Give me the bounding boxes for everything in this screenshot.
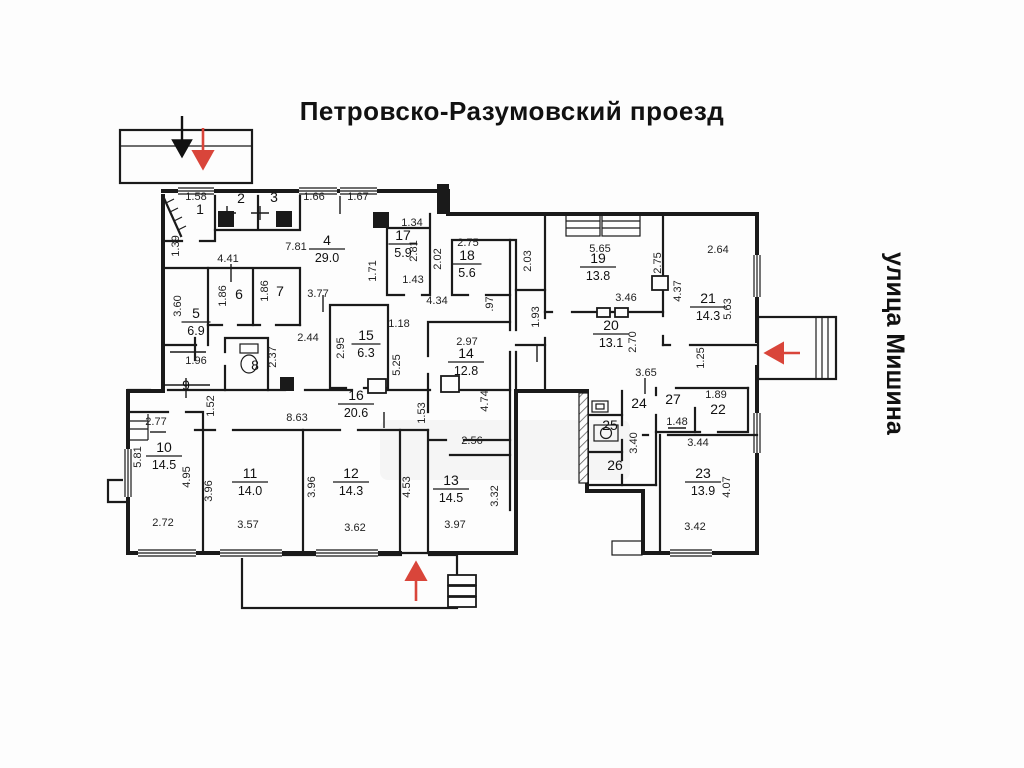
room-number: 17 <box>395 227 411 243</box>
dim-label: 2.03 <box>522 250 534 271</box>
dim-label: 4.53 <box>401 476 413 497</box>
dim-label: 3.97 <box>444 519 465 531</box>
room-area: 13.8 <box>586 269 610 283</box>
room-number: 26 <box>607 457 623 473</box>
dim-label: 1.25 <box>695 347 707 368</box>
dim-label: 4.37 <box>672 280 684 301</box>
room-number: 16 <box>348 387 364 403</box>
dim-label: 4.95 <box>181 466 193 487</box>
dim-label: 4.74 <box>479 390 491 411</box>
room-area: 20.6 <box>344 406 368 420</box>
dim-label: 2.72 <box>152 517 173 529</box>
dim-label: 2.02 <box>432 248 444 269</box>
dim-label: 4.34 <box>426 295 447 307</box>
staircase <box>566 214 640 236</box>
dim-label: 3.40 <box>628 432 640 453</box>
dim-label: 2.75 <box>652 252 664 273</box>
room-number: 6 <box>235 286 243 302</box>
room-number: 3 <box>270 189 278 205</box>
room-number: 21 <box>700 290 716 306</box>
room-number: 24 <box>631 395 647 411</box>
room-area: 13.9 <box>691 484 715 498</box>
dim-label: 3.32 <box>489 485 501 506</box>
room-number: 2 <box>237 190 245 206</box>
dim-label: 1.86 <box>217 285 229 306</box>
room-number: 7 <box>276 283 284 299</box>
room-number: 23 <box>695 465 711 481</box>
dim-label: 1.43 <box>402 274 423 286</box>
dim-label: 1.96 <box>185 355 206 367</box>
dim-label: 1.71 <box>367 260 379 281</box>
room-number: 13 <box>443 472 459 488</box>
room-area: 14.5 <box>439 491 463 505</box>
dim-label: 4.41 <box>217 253 238 265</box>
room-number: 20 <box>603 317 619 333</box>
room-number: 18 <box>459 247 475 263</box>
room-area: 5.9 <box>394 246 411 260</box>
room-area: 14.3 <box>339 484 363 498</box>
dim-label: 2.56 <box>461 435 482 447</box>
dim-label: 2.44 <box>297 332 318 344</box>
dim-label: 4.07 <box>721 476 733 497</box>
room-number: 12 <box>343 465 359 481</box>
dim-label: 3.65 <box>635 367 656 379</box>
room-number: 19 <box>590 250 606 266</box>
room-area: 29.0 <box>315 251 339 265</box>
room-number: 4 <box>323 232 331 248</box>
dim-label: 1.89 <box>705 389 726 401</box>
right-entrance-porch <box>758 317 836 379</box>
dim-label: 3.77 <box>307 288 328 300</box>
room-number: 1 <box>196 201 204 217</box>
plan-labels: 1.581.661.671.344.417.813.772.442.755.65… <box>132 189 734 534</box>
floor-plan-page: Петровско-Разумовский проезд улица Мишин… <box>0 0 1024 768</box>
dim-label: 5.81 <box>132 446 144 467</box>
dim-label: 3.62 <box>344 522 365 534</box>
dim-label: 1.93 <box>530 306 542 327</box>
dim-label: 8.63 <box>286 412 307 424</box>
dim-label: 3.96 <box>306 476 318 497</box>
room-area: 13.1 <box>599 336 623 350</box>
room-number: 15 <box>358 327 374 343</box>
dim-label: 3.60 <box>172 295 184 316</box>
dim-label: 3.46 <box>615 292 636 304</box>
dim-label: 1.67 <box>347 191 368 203</box>
dim-label: 2.95 <box>335 337 347 358</box>
room-area: 14.3 <box>696 309 720 323</box>
room-number: 8 <box>251 357 259 373</box>
room-number: 22 <box>710 401 726 417</box>
dim-label: 5.25 <box>391 354 403 375</box>
room-number: 25 <box>602 417 618 433</box>
dim-label: 3.96 <box>203 480 215 501</box>
room-area: 6.3 <box>357 346 374 360</box>
dim-label: 1.52 <box>205 395 217 416</box>
room-number: 10 <box>156 439 172 455</box>
room-number: 9 <box>182 377 190 393</box>
room-area: 5.6 <box>458 266 475 280</box>
room-area: 6.9 <box>187 324 204 338</box>
dim-label: 5.63 <box>722 298 734 319</box>
dim-label: 3.42 <box>684 521 705 533</box>
floor-plan-drawing: 1.581.661.671.344.417.813.772.442.755.65… <box>0 0 1024 768</box>
dim-label: 3.57 <box>237 519 258 531</box>
top-entrance-porch <box>120 130 252 183</box>
room-number: 5 <box>192 305 200 321</box>
dim-label: 1.39 <box>170 235 182 256</box>
room-area: 12.8 <box>454 364 478 378</box>
room-number: 11 <box>243 465 258 481</box>
dim-label: 2.64 <box>707 244 728 256</box>
dim-label: 3.44 <box>687 437 708 449</box>
room-number: 14 <box>458 345 474 361</box>
room-number: 27 <box>665 391 681 407</box>
dim-label: 2.77 <box>145 416 166 428</box>
dim-label: 1.48 <box>666 416 687 428</box>
room-area: 14.0 <box>238 484 262 498</box>
dim-label: 7.81 <box>285 241 306 253</box>
dim-label: .97 <box>484 296 496 311</box>
dim-label: 1.86 <box>259 280 271 301</box>
dim-label: 1.18 <box>388 318 409 330</box>
dim-label: 1.53 <box>416 402 428 423</box>
dim-label: 1.66 <box>303 191 324 203</box>
room-area: 14.5 <box>152 458 176 472</box>
dim-label: 2.37 <box>267 346 279 367</box>
